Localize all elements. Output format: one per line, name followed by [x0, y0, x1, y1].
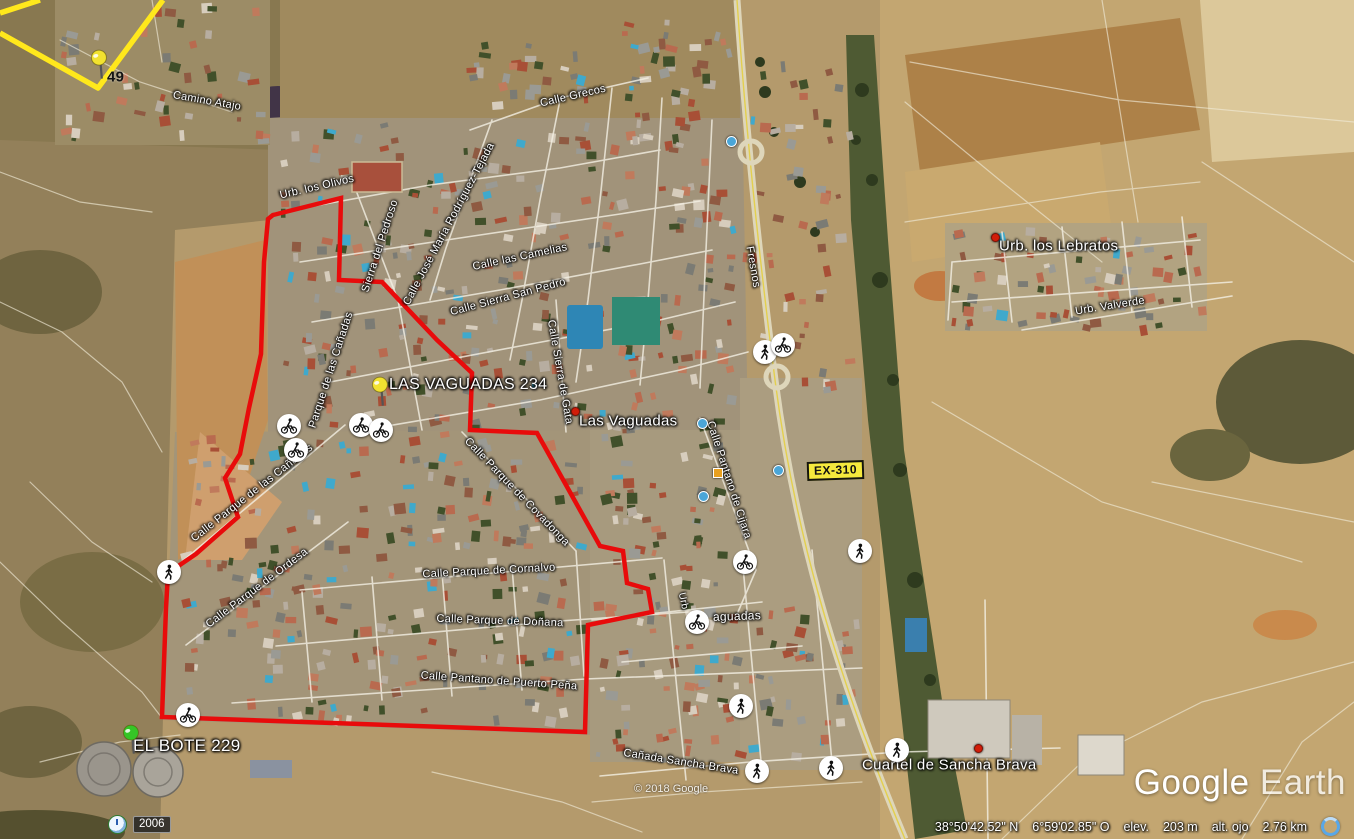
pedestrian-photo-icon[interactable]: [848, 539, 872, 563]
photo-square-icon[interactable]: [713, 468, 723, 478]
place-dot[interactable]: [991, 233, 1000, 242]
historical-imagery-indicator[interactable]: 2006: [108, 815, 171, 834]
imagery-year[interactable]: 2006: [133, 816, 171, 833]
cyclist-photo-icon[interactable]: [771, 333, 795, 357]
google-earth-watermark: Google Earth: [1134, 763, 1346, 803]
walker-icon: [160, 563, 178, 581]
walker-icon: [888, 741, 906, 759]
watermark-earth: Earth: [1260, 763, 1346, 802]
map-viewport[interactable]: Camino AtajoUrb. los OlivosCalle GrecosS…: [0, 0, 1354, 839]
photo-dot-icon[interactable]: [697, 418, 708, 429]
pedestrian-photo-icon[interactable]: [157, 560, 181, 584]
status-longitude: 6°59'02.85" O: [1032, 820, 1109, 834]
cyclist-icon: [372, 421, 390, 439]
cyclist-icon: [736, 553, 754, 571]
pedestrian-photo-icon[interactable]: [819, 756, 843, 780]
watermark-google: Google: [1134, 763, 1250, 802]
cyclist-icon: [352, 416, 370, 434]
clock-icon: [108, 815, 127, 834]
photo-dot-icon[interactable]: [698, 491, 709, 502]
walker-icon: [732, 697, 750, 715]
cyclist-photo-icon[interactable]: [685, 610, 709, 634]
pedestrian-photo-icon[interactable]: [885, 738, 909, 762]
status-eye-alt-label: alt. ojo: [1212, 820, 1249, 834]
pedestrian-photo-icon[interactable]: [729, 694, 753, 718]
walker-icon: [851, 542, 869, 560]
cyclist-photo-icon[interactable]: [277, 414, 301, 438]
status-elev-value: 203 m: [1163, 820, 1198, 834]
cyclist-photo-icon[interactable]: [369, 418, 393, 442]
navigation-controls: N + − −: [1284, 0, 1354, 320]
walker-icon: [748, 762, 766, 780]
cyclist-photo-icon[interactable]: [284, 438, 308, 462]
satellite-imagery: [0, 0, 1354, 839]
cyclist-icon: [688, 613, 706, 631]
status-eye-alt-value: 2.76 km: [1263, 820, 1307, 834]
status-bar: 38°50'42.52" N 6°59'02.85" O elev. 203 m…: [935, 817, 1340, 836]
pedestrian-photo-icon[interactable]: [745, 759, 769, 783]
place-dot[interactable]: [974, 744, 983, 753]
cyclist-photo-icon[interactable]: [733, 550, 757, 574]
walker-icon: [822, 759, 840, 777]
cyclist-icon: [179, 706, 197, 724]
cyclist-icon: [287, 441, 305, 459]
cyclist-icon: [774, 336, 792, 354]
road-badge-ex310: EX-310: [807, 460, 865, 481]
cyclist-icon: [280, 417, 298, 435]
photo-dot-icon[interactable]: [773, 465, 784, 476]
status-elev-label: elev.: [1123, 820, 1148, 834]
place-dot[interactable]: [571, 407, 580, 416]
streaming-indicator-icon: [1321, 817, 1340, 836]
status-latitude: 38°50'42.52" N: [935, 820, 1018, 834]
cyclist-photo-icon[interactable]: [176, 703, 200, 727]
photo-dot-icon[interactable]: [726, 136, 737, 147]
copyright-text: © 2018 Google: [634, 783, 708, 795]
